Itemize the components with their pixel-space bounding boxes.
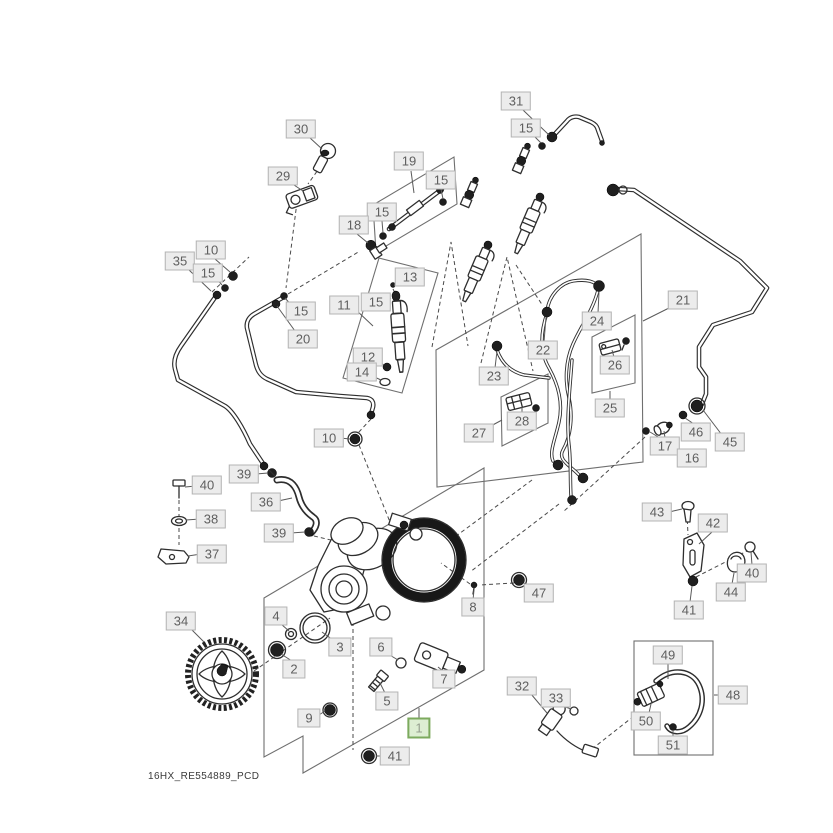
part-label-27[interactable]: 27: [464, 424, 494, 443]
fuel-injectors-drawing: [389, 142, 551, 373]
nut-46: [679, 411, 687, 419]
part-label-15[interactable]: 15: [511, 119, 541, 138]
nut-2-drawing: [269, 642, 286, 659]
part-label-29[interactable]: 29: [268, 167, 298, 186]
oring-33: [570, 707, 578, 715]
part-label-23[interactable]: 23: [479, 367, 509, 386]
fitting-22: [542, 307, 552, 317]
injection-pump-drawing: [310, 512, 466, 625]
part-label-13[interactable]: 13: [395, 268, 425, 287]
nut-41-bottom-drawing: [362, 749, 377, 764]
part-label-16[interactable]: 16: [677, 449, 707, 468]
part-label-15[interactable]: 15: [193, 264, 223, 283]
bolt-40-left-drawing: [173, 480, 185, 498]
part-label-15[interactable]: 15: [367, 203, 397, 222]
part-label-21[interactable]: 21: [668, 291, 698, 310]
part-label-44[interactable]: 44: [716, 583, 746, 602]
exploded-view-drawing: [0, 0, 833, 833]
nut-10-right-drawing: [348, 432, 362, 446]
fitting-24: [594, 281, 605, 292]
part-label-31[interactable]: 31: [501, 92, 531, 111]
part-label-8[interactable]: 8: [461, 598, 484, 617]
part-label-35[interactable]: 35: [165, 252, 195, 271]
part-label-15[interactable]: 15: [286, 302, 316, 321]
part-label-17[interactable]: 17: [650, 437, 680, 456]
drive-gear-34-drawing: [188, 640, 256, 708]
nut-15-pipe31: [539, 143, 546, 150]
part-label-10[interactable]: 10: [314, 429, 344, 448]
part-label-50[interactable]: 50: [631, 712, 661, 731]
nut-10-left: [229, 272, 238, 281]
part-label-1[interactable]: 1: [407, 718, 430, 739]
part-label-22[interactable]: 22: [528, 341, 558, 360]
part-label-15[interactable]: 15: [361, 293, 391, 312]
nut-15-left2: [222, 285, 229, 292]
part-label-45[interactable]: 45: [715, 433, 745, 452]
fuel-pipe-31-drawing: [539, 117, 605, 150]
part-label-9[interactable]: 9: [297, 709, 320, 728]
part-label-43[interactable]: 43: [642, 503, 672, 522]
nut-15-pipe20: [281, 293, 288, 300]
nut-41-right: [688, 576, 698, 586]
part-label-41[interactable]: 41: [674, 601, 704, 620]
connector-26-drawing: [599, 338, 630, 356]
part-label-10[interactable]: 10: [196, 241, 226, 260]
part-label-47[interactable]: 47: [524, 584, 554, 603]
part-label-36[interactable]: 36: [251, 493, 281, 512]
part-label-6[interactable]: 6: [369, 638, 392, 657]
part-label-7[interactable]: 7: [432, 670, 455, 689]
screw-39-lower: [305, 528, 314, 537]
bolt-40-right: [745, 542, 755, 552]
speed-sensor-30-drawing: [313, 144, 336, 174]
part-label-28[interactable]: 28: [507, 412, 537, 431]
part-label-19[interactable]: 19: [394, 152, 424, 171]
part-label-49[interactable]: 49: [653, 646, 683, 665]
part-label-14[interactable]: 14: [347, 363, 377, 382]
oring-3-drawing: [300, 613, 330, 643]
part-label-51[interactable]: 51: [658, 736, 688, 755]
part-label-39[interactable]: 39: [229, 465, 259, 484]
part-label-11[interactable]: 11: [329, 296, 359, 315]
part-label-3[interactable]: 3: [328, 638, 351, 657]
sensor-32-drawing: [537, 700, 599, 757]
nut-15-right: [440, 199, 447, 206]
part-label-34[interactable]: 34: [166, 612, 196, 631]
screw-39-upper-drawing: [268, 469, 277, 478]
fitting-23: [492, 341, 502, 351]
part-label-42[interactable]: 42: [698, 514, 728, 533]
part-label-46[interactable]: 46: [681, 423, 711, 442]
relay-28-drawing: [506, 392, 540, 411]
part-label-15[interactable]: 15: [426, 171, 456, 190]
washer-14: [380, 379, 390, 386]
part-label-37[interactable]: 37: [197, 545, 227, 564]
part-label-2[interactable]: 2: [282, 660, 305, 679]
bracket-37-drawing: [158, 549, 189, 564]
nut-12: [383, 363, 391, 371]
plug-9-drawing: [323, 703, 337, 717]
parts-diagram-page: 3029191515181310351515201115121431152124…: [0, 0, 833, 833]
part-label-18[interactable]: 18: [339, 216, 369, 235]
part-label-26[interactable]: 26: [600, 356, 630, 375]
part-label-30[interactable]: 30: [286, 120, 316, 139]
part-label-32[interactable]: 32: [507, 677, 537, 696]
washer-38-drawing: [172, 517, 187, 526]
washer-16: [643, 428, 650, 435]
part-label-33[interactable]: 33: [541, 689, 571, 708]
washer-4-drawing: [286, 629, 297, 640]
part-label-25[interactable]: 25: [595, 399, 625, 418]
part-label-20[interactable]: 20: [288, 330, 318, 349]
nut-15-left: [380, 233, 387, 240]
part-label-40[interactable]: 40: [737, 564, 767, 583]
fitting-45: [691, 400, 703, 412]
part-label-41[interactable]: 41: [380, 747, 410, 766]
part-label-24[interactable]: 24: [582, 312, 612, 331]
screw-5-drawing: [367, 670, 388, 693]
drawing-code: 16HX_RE554889_PCD: [148, 771, 259, 782]
part-label-4[interactable]: 4: [264, 607, 287, 626]
part-label-38[interactable]: 38: [196, 510, 226, 529]
part-label-40[interactable]: 40: [192, 476, 222, 495]
part-label-39[interactable]: 39: [264, 524, 294, 543]
part-label-48[interactable]: 48: [718, 686, 748, 705]
fuel-pipe-35-drawing: [174, 291, 268, 470]
part-label-5[interactable]: 5: [375, 692, 398, 711]
bolt-51: [670, 724, 677, 731]
